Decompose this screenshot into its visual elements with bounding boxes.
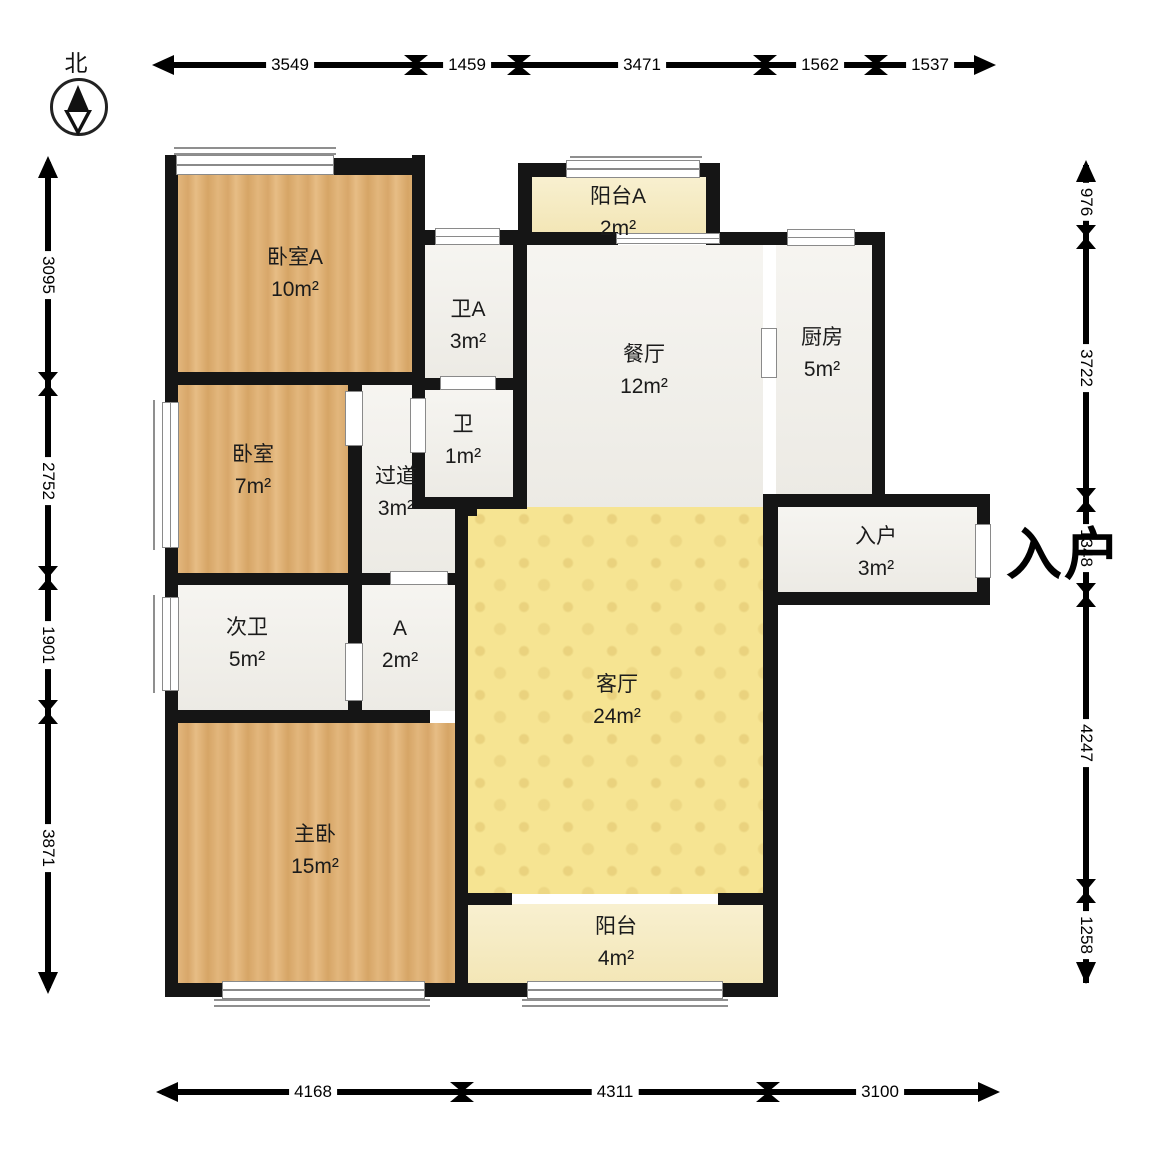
room-name: 次卫 [187, 612, 307, 644]
floor-plan: 卧室A 10m² 卫A 3m² 阳台A 2m² 餐厅 12m² 厨房 5m² 卧… [0, 0, 1155, 1155]
room-area: 3m² [408, 326, 528, 358]
room-area: 3m² [816, 553, 936, 585]
room-name: 阳台A [558, 181, 678, 213]
bay-window-line [570, 156, 702, 158]
dim-value: 1562 [796, 55, 844, 75]
room-label-balcony-a: 阳台A 2m² [558, 181, 678, 245]
dim-value: 2752 [38, 457, 58, 505]
bay-window-line [522, 999, 728, 1001]
window [787, 229, 855, 246]
dim-value: 1258 [1076, 911, 1096, 959]
room-label-master: 主卧 15m² [255, 819, 375, 883]
room-area: 12m² [584, 371, 704, 403]
dim-value: 1537 [906, 55, 954, 75]
dim-value: 4311 [592, 1082, 639, 1102]
window [162, 597, 179, 691]
room-name: 阳台 [556, 911, 676, 943]
dim-value: 3549 [266, 55, 314, 75]
dim-value: 3100 [856, 1082, 904, 1102]
wall [763, 507, 778, 997]
dim-value: 3871 [38, 824, 58, 872]
room-label-a: A 2m² [340, 613, 460, 677]
room-name: A [340, 613, 460, 645]
dim-arrow [38, 972, 58, 994]
room-label-bedroom-a: 卧室A 10m² [235, 242, 355, 306]
dim-value: 4168 [289, 1082, 337, 1102]
room-name: 餐厅 [584, 339, 704, 371]
room-area: 4m² [556, 943, 676, 975]
room-name: 卧室 [193, 439, 313, 471]
room-name: 卧室A [235, 242, 355, 274]
dim-arrow [38, 156, 58, 178]
wall [718, 893, 765, 905]
dim-arrow [1076, 160, 1096, 182]
room-area: 5m² [187, 644, 307, 676]
bay-window-line [153, 595, 155, 693]
room-name: 主卧 [255, 819, 375, 851]
door-bath-a [440, 376, 496, 390]
wall [763, 494, 990, 507]
room-name: 卫 [403, 409, 523, 441]
room-name: 厨房 [762, 322, 882, 354]
bay-window-line [214, 1005, 430, 1007]
room-label-bedroom: 卧室 7m² [193, 439, 313, 503]
dim-value: 3095 [38, 251, 58, 299]
window [162, 402, 179, 548]
bay-window-line [174, 147, 336, 149]
door-bedroom [345, 391, 363, 446]
room-name: 客厅 [557, 669, 677, 701]
dim-value: 976 [1076, 183, 1096, 221]
north-label: 北 [56, 44, 96, 78]
window [435, 228, 500, 245]
room-label-balcony: 阳台 4m² [556, 911, 676, 975]
bay-window-line [214, 999, 430, 1001]
dim-arrow [978, 1082, 1000, 1102]
dim-value: 4247 [1076, 719, 1096, 767]
window [176, 155, 334, 175]
window [527, 981, 723, 999]
bay-window-line [522, 1005, 728, 1007]
dim-arrow [974, 55, 996, 75]
wall [763, 592, 990, 605]
wall [165, 372, 425, 385]
room-area: 5m² [762, 354, 882, 386]
dim-value: 1459 [443, 55, 491, 75]
wall [165, 710, 430, 723]
room-name: 过道 [336, 461, 456, 493]
door-hallway [390, 571, 448, 585]
dim-value: 3722 [1076, 344, 1096, 392]
door-main-entry [975, 524, 991, 578]
room-area: 7m² [193, 471, 313, 503]
dim-arrow [152, 55, 174, 75]
room-area: 2m² [340, 645, 460, 677]
room-label-dining: 餐厅 12m² [584, 339, 704, 403]
window [222, 981, 425, 999]
room-label-living: 客厅 24m² [557, 669, 677, 733]
wall [455, 502, 468, 997]
dim-value: 3471 [618, 55, 666, 75]
dim-arrow [1076, 962, 1096, 984]
room-area: 2m² [558, 213, 678, 245]
room-area: 15m² [255, 851, 375, 883]
dim-arrow [156, 1082, 178, 1102]
room-label-kitchen: 厨房 5m² [762, 322, 882, 386]
entry-direction-label: 入户 [1006, 510, 1155, 591]
room-label-entry: 入户 3m² [816, 521, 936, 585]
room-label-hallway: 过道 3m² [336, 461, 456, 525]
room-name: 卫A [408, 294, 528, 326]
room-area: 24m² [557, 701, 677, 733]
room-label-bath-a: 卫A 3m² [408, 294, 528, 358]
room-label-second-bath: 次卫 5m² [187, 612, 307, 676]
window [566, 160, 700, 178]
room-name: 入户 [816, 521, 936, 553]
room-area: 3m² [336, 493, 456, 525]
wall [462, 502, 477, 516]
bay-window-line [153, 400, 155, 550]
dim-value: 1901 [38, 621, 58, 669]
room-area: 10m² [235, 274, 355, 306]
